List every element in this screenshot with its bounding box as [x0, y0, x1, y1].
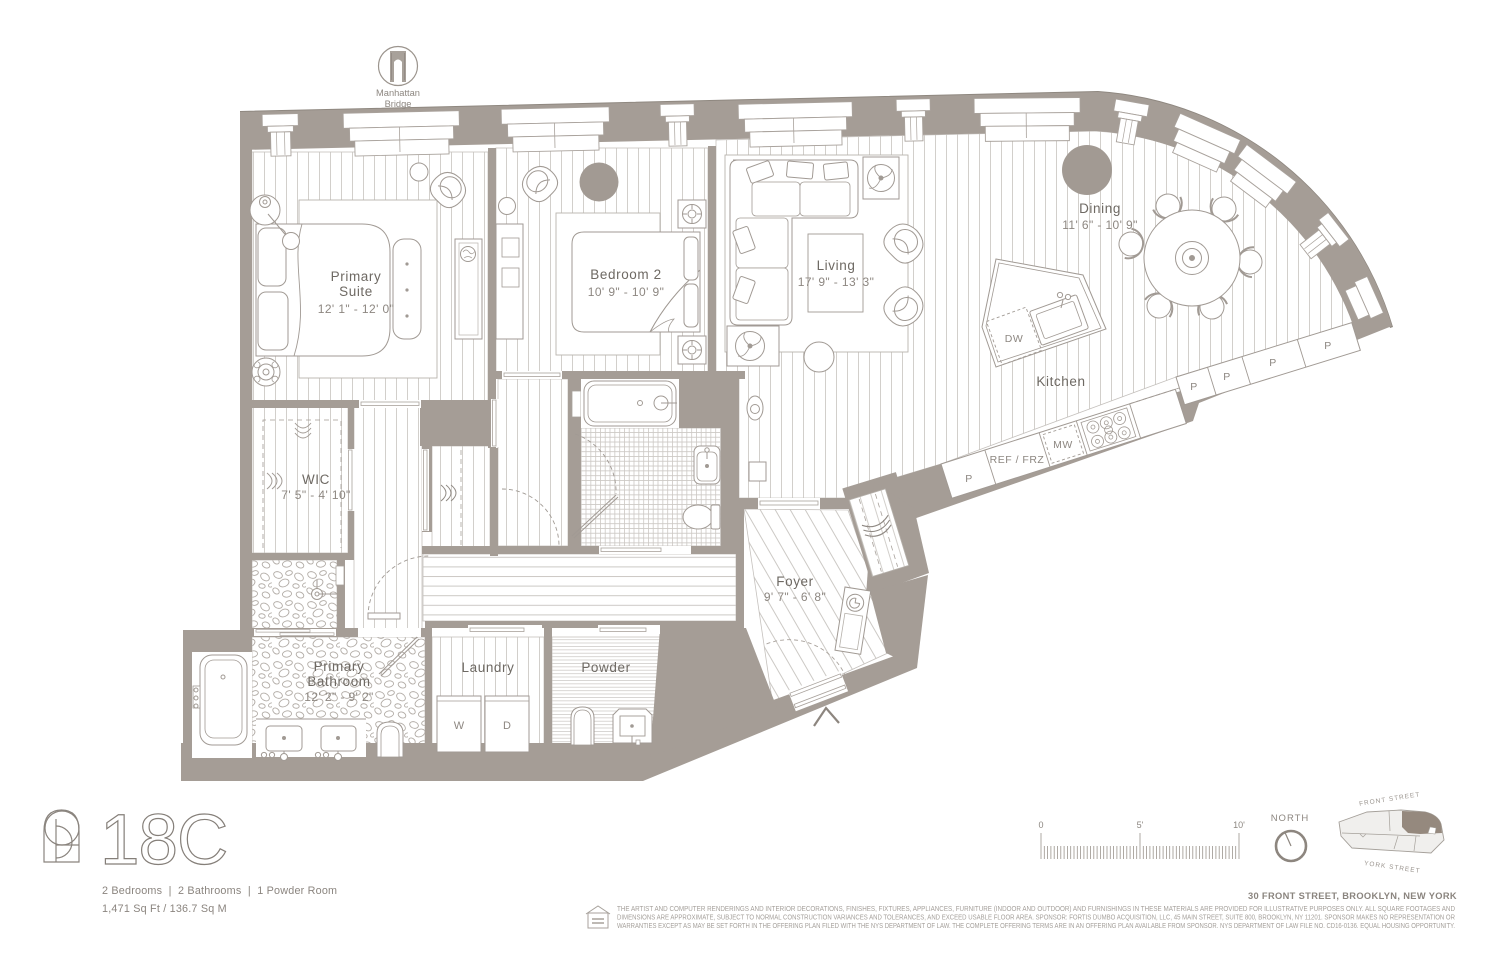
svg-text:5': 5': [1137, 820, 1144, 830]
svg-text:W: W: [454, 720, 465, 732]
svg-text:Living: Living: [817, 258, 856, 273]
svg-text:2 Bedrooms | 2 Bathrooms |: 2 Bedrooms | 2 Bathrooms | 1 Powder Room: [102, 885, 337, 897]
svg-text:REF / FRZ: REF / FRZ: [990, 454, 1045, 466]
svg-text:10': 10': [1233, 820, 1245, 830]
svg-text:P: P: [965, 473, 973, 485]
svg-text:MW: MW: [1053, 439, 1073, 451]
svg-text:7' 5" - 4' 10": 7' 5" - 4' 10": [281, 488, 350, 502]
svg-text:Bathroom: Bathroom: [307, 674, 370, 689]
svg-text:Foyer: Foyer: [776, 574, 814, 589]
svg-text:NORTH: NORTH: [1271, 813, 1310, 824]
svg-text:Powder: Powder: [581, 660, 630, 675]
svg-text:Laundry: Laundry: [462, 660, 515, 675]
svg-text:WARRANTIES EXCEPT AS MAY BE SE: WARRANTIES EXCEPT AS MAY BE SET FORTH IN…: [617, 921, 1455, 930]
svg-text:P: P: [1324, 340, 1332, 352]
svg-text:P: P: [1223, 371, 1231, 383]
svg-text:18C: 18C: [100, 801, 227, 880]
svg-text:P: P: [1190, 381, 1198, 393]
svg-text:17' 9" - 13' 3": 17' 9" - 13' 3": [798, 275, 874, 289]
svg-text:Manhattan: Manhattan: [376, 88, 420, 98]
svg-text:10' 9" - 10' 9": 10' 9" - 10' 9": [588, 285, 664, 299]
svg-text:DW: DW: [1005, 333, 1024, 345]
svg-text:11' 6" - 10' 9": 11' 6" - 10' 9": [1062, 218, 1138, 232]
svg-text:WIC: WIC: [302, 472, 330, 487]
svg-text:Primary: Primary: [331, 269, 382, 284]
svg-text:12' 1" - 12' 0": 12' 1" - 12' 0": [318, 302, 394, 316]
svg-text:Kitchen: Kitchen: [1036, 374, 1085, 389]
svg-text:1,471 Sq Ft / 136.7 Sq M: 1,471 Sq Ft / 136.7 Sq M: [102, 903, 227, 915]
svg-text:Dining: Dining: [1079, 201, 1121, 216]
svg-text:P: P: [1269, 357, 1277, 369]
svg-text:Bedroom 2: Bedroom 2: [590, 267, 661, 282]
svg-text:9' 7" - 6' 8": 9' 7" - 6' 8": [764, 590, 826, 604]
svg-text:12' 2" - 9' 2": 12' 2" - 9' 2": [304, 690, 373, 704]
svg-text:Primary: Primary: [314, 659, 365, 674]
svg-text:30 FRONT STREET, BROOKLYN, NEW: 30 FRONT STREET, BROOKLYN, NEW YORK: [1248, 891, 1457, 901]
svg-text:D: D: [503, 720, 511, 732]
svg-text:Suite: Suite: [339, 284, 373, 299]
svg-text:Bridge: Bridge: [385, 99, 412, 109]
svg-text:0: 0: [1038, 820, 1043, 830]
